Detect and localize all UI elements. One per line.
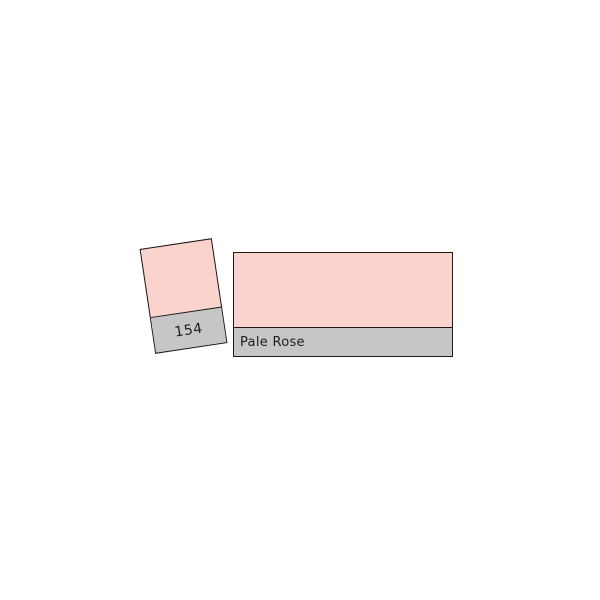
filter-code: 154 [173, 320, 203, 340]
swatch-card-label-strip: 154 [151, 307, 227, 353]
filter-swatch-card: 154 [140, 238, 228, 354]
filter-name: Pale Rose [234, 335, 305, 350]
filter-swatch-bar: Pale Rose [233, 252, 453, 357]
swatch-bar-label-strip: Pale Rose [234, 327, 452, 356]
product-image-canvas: 154 Pale Rose [0, 0, 600, 600]
